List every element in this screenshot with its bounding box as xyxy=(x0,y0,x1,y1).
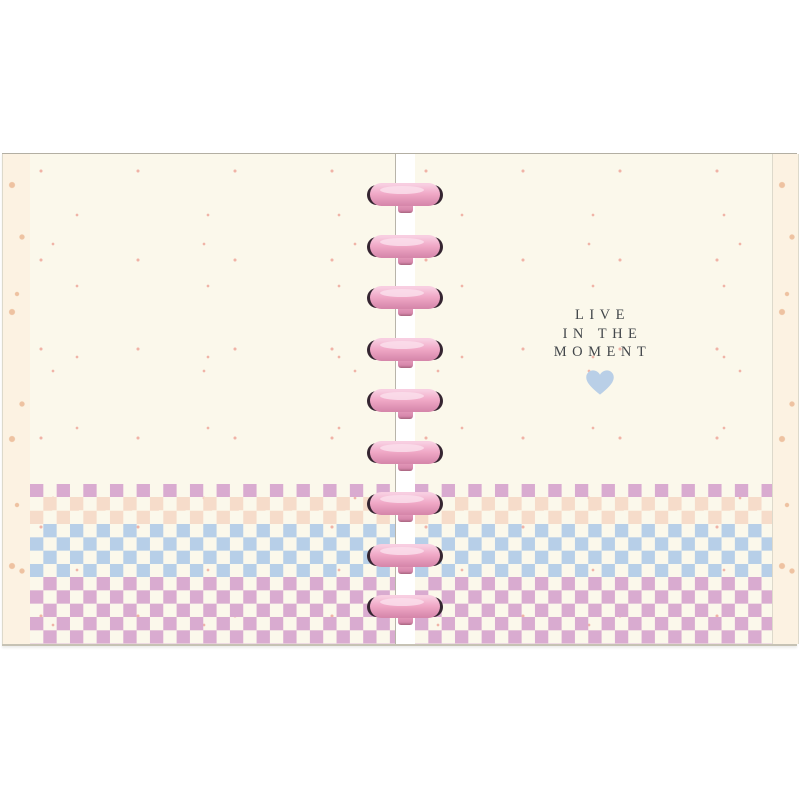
checker-band-mauve xyxy=(30,577,395,644)
binder-disc xyxy=(367,595,443,619)
disc-highlight xyxy=(380,547,424,555)
binder-disc xyxy=(367,338,443,362)
disc-highlight xyxy=(380,341,424,349)
binder-disc xyxy=(367,441,443,465)
checker-pattern-left xyxy=(30,484,395,644)
heart-icon xyxy=(585,369,615,396)
quote-line-2: IN THE xyxy=(500,325,700,344)
checker-pattern-right xyxy=(415,484,772,644)
checker-band-peach xyxy=(30,497,395,524)
quote-line-1: LIVE xyxy=(500,306,700,325)
binder-disc xyxy=(367,183,443,207)
disc-highlight xyxy=(380,186,424,194)
disc-highlight xyxy=(380,598,424,606)
binder-disc xyxy=(367,235,443,259)
checker-band-mauve xyxy=(415,484,772,497)
disc-highlight xyxy=(380,238,424,246)
disc-highlight xyxy=(380,444,424,452)
checker-band-mauve xyxy=(415,577,772,644)
checker-band-peach xyxy=(415,497,772,524)
disc-highlight xyxy=(380,289,424,297)
binder-disc xyxy=(367,286,443,310)
checker-band-blue xyxy=(30,524,395,577)
cover-edge-left xyxy=(2,154,31,644)
binder-disc xyxy=(367,544,443,568)
checker-band-mauve xyxy=(30,484,395,497)
quote-block: LIVE IN THE MOMENT xyxy=(500,306,700,401)
checker-band-blue xyxy=(415,524,772,577)
page-left xyxy=(30,154,395,644)
page-right: LIVE IN THE MOMENT xyxy=(415,154,772,644)
disc-highlight xyxy=(380,392,424,400)
binder-disc xyxy=(367,492,443,516)
quote-line-3: MOMENT xyxy=(500,343,700,362)
disc-highlight xyxy=(380,495,424,503)
open-notebook: LIVE IN THE MOMENT xyxy=(2,153,797,646)
binder-disc xyxy=(367,389,443,413)
cover-edge-right xyxy=(772,154,799,644)
product-photo-stage: LIVE IN THE MOMENT xyxy=(0,0,800,800)
